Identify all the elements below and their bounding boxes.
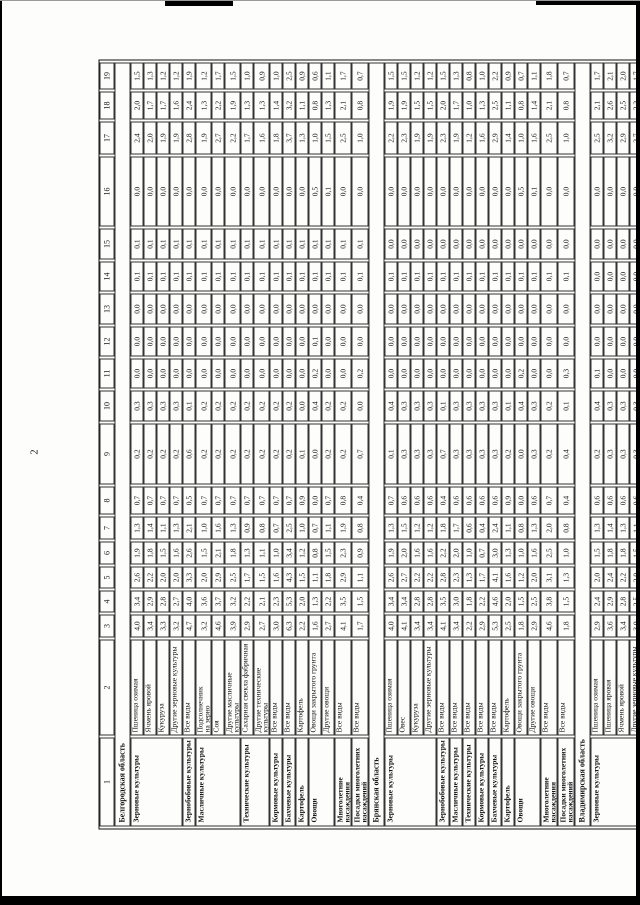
value-cell: 0,0 — [463, 294, 476, 325]
value-cell: 1,7 — [241, 567, 254, 589]
value-cell: 0,6 — [604, 487, 617, 515]
value-cell: 0,0 — [437, 359, 450, 389]
value-cell: 1,2 — [296, 542, 309, 565]
value-cell: 2,5 — [489, 92, 502, 120]
value-cell: 0,3 — [476, 424, 489, 485]
value-cell: 0,2 — [352, 359, 369, 389]
value-cell: 0,0 — [476, 327, 489, 357]
value-cell: 1,9 — [335, 517, 352, 540]
value-cell: 0,3 — [424, 391, 437, 422]
value-cell: 0,1 — [541, 262, 558, 292]
row-label: Все виды — [283, 640, 296, 736]
value-cell: 0,1 — [335, 229, 352, 260]
value-cell: 0,0 — [270, 294, 283, 325]
value-cell: 2,8 — [157, 591, 170, 613]
table-row: Зернобобовые культурыВсе виды4,74,03,32,… — [183, 63, 196, 827]
value-cell: 0,0 — [322, 327, 335, 357]
value-cell: 1,3 — [241, 92, 254, 120]
value-cell: 0,0 — [144, 157, 157, 227]
value-cell: 1,0 — [270, 542, 283, 565]
value-cell: 0,9 — [502, 63, 515, 90]
value-cell: 0,0 — [541, 229, 558, 260]
region-header: Брянская область — [369, 63, 385, 827]
value-cell: 0,6 — [463, 517, 476, 540]
value-cell: 0,1 — [476, 262, 489, 292]
value-cell: 0,3 — [411, 391, 424, 422]
value-cell: 1,8 — [515, 615, 528, 638]
value-cell: 0,0 — [515, 229, 528, 260]
value-cell: 2,7 — [254, 615, 270, 638]
value-cell: 3,9 — [225, 615, 241, 638]
value-cell: 0,0 — [502, 294, 515, 325]
value-cell: 0,0 — [450, 157, 463, 227]
value-cell: 0,0 — [296, 157, 309, 227]
value-cell: 0,0 — [515, 294, 528, 325]
value-cell: 1,0 — [241, 63, 254, 90]
value-cell: 0,0 — [283, 359, 296, 389]
value-cell: 1,0 — [558, 122, 575, 155]
value-cell: 0,1 — [196, 229, 212, 260]
value-cell: 2,0 — [170, 567, 183, 589]
value-cell: 0,0 — [385, 157, 398, 227]
value-cell: 0,1 — [502, 262, 515, 292]
table-row: Ячмень яровой3,42,82,21,81,30,60,30,30,0… — [617, 63, 630, 827]
value-cell: 0,0 — [528, 294, 541, 325]
value-cell: 0,0 — [463, 229, 476, 260]
value-cell: 2,0 — [450, 542, 463, 565]
value-cell: 0,3 — [489, 424, 502, 485]
value-cell: 0,2 — [515, 359, 528, 389]
value-cell: 1,9 — [225, 92, 241, 120]
value-cell: 0,7 — [385, 487, 398, 515]
value-cell: 1,2 — [463, 122, 476, 155]
value-cell: 0,0 — [424, 327, 437, 357]
table-row: Соя4,63,72,92,11,60,70,20,20,00,00,00,10… — [212, 63, 225, 827]
value-cell: 1,3 — [463, 567, 476, 589]
group-label: Технические культуры — [241, 738, 270, 827]
value-cell: 0,0 — [617, 229, 630, 260]
group-label: Картофель — [296, 738, 309, 827]
table-row: Технические культурыСахарная свекла фабр… — [241, 63, 254, 827]
value-cell: 2,2 — [385, 122, 398, 155]
value-cell: 0,1 — [296, 262, 309, 292]
group-label: Зернобобовые культуры — [437, 738, 450, 827]
table-row: Многолетние насажденияВсе виды4,13,52,92… — [335, 63, 352, 827]
table-row: Другие зерновые культуры3,22,72,01,61,30… — [170, 63, 183, 827]
value-cell: 1,1 — [296, 92, 309, 120]
value-cell: 0,0 — [463, 157, 476, 227]
group-label: Бахчевые культуры — [283, 738, 296, 827]
row-label: Ячмень яровой — [144, 640, 157, 736]
value-cell: 0,2 — [502, 424, 515, 485]
value-cell: 0,2 — [322, 424, 335, 485]
landscape-sheet: 2 12345678910111213141516171819Белгородс… — [4, 3, 638, 902]
table-row: Бахчевые культурыВсе виды5,34,64,13,02,4… — [489, 63, 502, 827]
crop-statistics-table: 12345678910111213141516171819Белгородска… — [99, 60, 640, 830]
value-cell: 0,3 — [398, 424, 411, 485]
value-cell: 5,3 — [489, 615, 502, 638]
value-cell: 0,1 — [296, 424, 309, 485]
value-cell: 3,4 — [144, 615, 157, 638]
value-cell: 0,0 — [450, 294, 463, 325]
value-cell: 0,0 — [502, 359, 515, 389]
value-cell: 0,0 — [296, 327, 309, 357]
table-row: Другие зерновые культуры3,42,82,21,61,20… — [424, 63, 437, 827]
value-cell: 0,2 — [270, 424, 283, 485]
value-cell: 2,5 — [591, 122, 604, 155]
value-cell: 2,4 — [591, 591, 604, 613]
row-label: Все виды — [270, 640, 283, 736]
value-cell: 0,0 — [322, 294, 335, 325]
value-cell: 2,9 — [144, 591, 157, 613]
value-cell: 0,1 — [170, 262, 183, 292]
table-row: Технические культурыВсе виды2,21,81,31,0… — [463, 63, 476, 827]
value-cell: 1,2 — [170, 63, 183, 90]
value-cell: 3,7 — [212, 591, 225, 613]
value-cell: 2,3 — [450, 567, 463, 589]
value-cell: 0,2 — [196, 391, 212, 422]
row-label: Все виды — [541, 640, 558, 736]
value-cell: 0,4 — [515, 391, 528, 422]
value-cell: 1,5 — [254, 567, 270, 589]
value-cell: 2,5 — [541, 122, 558, 155]
value-cell: 3,0 — [489, 542, 502, 565]
value-cell: 1,6 — [424, 542, 437, 565]
value-cell: 1,6 — [502, 567, 515, 589]
value-cell: 0,6 — [450, 487, 463, 515]
value-cell: 0,0 — [196, 294, 212, 325]
value-cell: 0,8 — [309, 542, 322, 565]
value-cell: 0,0 — [335, 294, 352, 325]
row-label: Все виды — [183, 640, 196, 736]
value-cell: 0,0 — [270, 157, 283, 227]
value-cell: 1,2 — [157, 63, 170, 90]
value-cell: 0,0 — [296, 359, 309, 389]
value-cell: 0,0 — [225, 327, 241, 357]
column-header: 4 — [100, 591, 115, 613]
value-cell: 2,4 — [131, 122, 144, 155]
value-cell: 0,0 — [309, 487, 322, 515]
value-cell: 0,1 — [296, 229, 309, 260]
value-cell: 0,0 — [309, 294, 322, 325]
value-cell: 1,1 — [157, 517, 170, 540]
value-cell: 0,1 — [196, 262, 212, 292]
value-cell: 0,1 — [463, 262, 476, 292]
value-cell: 0,0 — [398, 157, 411, 227]
value-cell: 0,6 — [528, 487, 541, 515]
value-cell: 1,0 — [270, 63, 283, 90]
value-cell: 0,9 — [254, 63, 270, 90]
group-label: Технические культуры — [463, 738, 476, 827]
scan-border-left — [0, 0, 2, 905]
value-cell: 2,3 — [398, 122, 411, 155]
value-cell: 0,3 — [157, 391, 170, 422]
value-cell: 2,9 — [489, 122, 502, 155]
value-cell: 0,6 — [398, 487, 411, 515]
value-cell: 0,0 — [604, 327, 617, 357]
value-cell: 0,0 — [183, 157, 196, 227]
value-cell: 0,3 — [450, 424, 463, 485]
value-cell: 1,6 — [476, 122, 489, 155]
table-wrapper: 12345678910111213141516171819Белгородска… — [99, 60, 640, 830]
value-cell: 0,0 — [591, 262, 604, 292]
value-cell: 1,5 — [515, 591, 528, 613]
value-cell: 0,0 — [411, 359, 424, 389]
value-cell: 0,6 — [411, 487, 424, 515]
value-cell: 0,0 — [528, 229, 541, 260]
value-cell: 0,7 — [352, 424, 369, 485]
value-cell: 2,7 — [212, 122, 225, 155]
value-cell: 0,1 — [309, 229, 322, 260]
value-cell: 1,3 — [502, 542, 515, 565]
value-cell: 0,6 — [463, 487, 476, 515]
table-row: Другие масличные культуры3,93,22,51,81,3… — [225, 63, 241, 827]
value-cell: 0,5 — [183, 487, 196, 515]
column-header: 2 — [100, 640, 115, 736]
value-cell: 0,0 — [296, 391, 309, 422]
value-cell: 0,1 — [352, 262, 369, 292]
value-cell: 1,6 — [254, 122, 270, 155]
value-cell: 0,2 — [541, 391, 558, 422]
value-cell: 1,7 — [144, 92, 157, 120]
value-cell: 0,0 — [489, 294, 502, 325]
value-cell: 0,7 — [270, 487, 283, 515]
value-cell: 2,0 — [437, 92, 450, 120]
value-cell: 0,0 — [617, 294, 630, 325]
value-cell: 1,3 — [385, 517, 398, 540]
value-cell: 1,7 — [157, 92, 170, 120]
value-cell: 1,8 — [225, 542, 241, 565]
table-row: КартофельКартофель2,52,01,61,31,10,90,20… — [502, 63, 515, 827]
value-cell: 0,0 — [212, 157, 225, 227]
value-cell: 0,2 — [225, 424, 241, 485]
value-cell: 3,7 — [283, 122, 296, 155]
row-label: Все виды — [450, 640, 463, 736]
value-cell: 0,0 — [144, 294, 157, 325]
value-cell: 0,5 — [515, 157, 528, 227]
value-cell: 2,5 — [502, 615, 515, 638]
row-label: Подсолнечник на зерно — [196, 640, 212, 736]
value-cell: 0,1 — [322, 157, 335, 227]
value-cell: 1,8 — [617, 542, 630, 565]
value-cell: 1,4 — [528, 92, 541, 120]
value-cell: 0,7 — [541, 487, 558, 515]
value-cell: 0,1 — [183, 262, 196, 292]
value-cell: 1,3 — [617, 517, 630, 540]
value-cell: 3,4 — [411, 615, 424, 638]
value-cell: 0,2 — [270, 391, 283, 422]
group-label: Зерновые культуры — [385, 738, 437, 827]
value-cell: 3,4 — [283, 542, 296, 565]
value-cell: 1,1 — [322, 63, 335, 90]
value-cell: 0,1 — [385, 262, 398, 292]
value-cell: 0,0 — [131, 294, 144, 325]
value-cell: 1,6 — [528, 542, 541, 565]
value-cell: 2,6 — [131, 567, 144, 589]
value-cell: 0,1 — [144, 262, 157, 292]
value-cell: 0,0 — [489, 229, 502, 260]
table-row: Бахчевые культурыВсе виды6,35,34,33,42,5… — [283, 63, 296, 827]
value-cell: 0,0 — [437, 294, 450, 325]
value-cell: 0,4 — [385, 391, 398, 422]
value-cell: 0,0 — [489, 359, 502, 389]
value-cell: 0,1 — [283, 229, 296, 260]
value-cell: 0,1 — [283, 262, 296, 292]
value-cell: 4,1 — [489, 567, 502, 589]
value-cell: 0,3 — [617, 391, 630, 422]
value-cell: 0,1 — [131, 262, 144, 292]
row-label: Овощи закрытого грунта — [309, 640, 322, 736]
value-cell: 0,8 — [558, 92, 575, 120]
value-cell: 0,0 — [604, 157, 617, 227]
column-header: 19 — [100, 63, 115, 90]
column-header: 12 — [100, 327, 115, 357]
value-cell: 0,1 — [558, 262, 575, 292]
value-cell: 2,1 — [335, 92, 352, 120]
value-cell: 0,2 — [212, 424, 225, 485]
row-label: Картофель — [502, 640, 515, 736]
value-cell: 0,0 — [604, 262, 617, 292]
table-row: Зернобобовые культурыВсе виды4,13,52,82,… — [437, 63, 450, 827]
value-cell: 0,0 — [558, 327, 575, 357]
value-cell: 0,0 — [212, 359, 225, 389]
value-cell: 0,1 — [411, 262, 424, 292]
value-cell: 2,0 — [196, 567, 212, 589]
row-label: Овес — [398, 640, 411, 736]
value-cell: 1,0 — [309, 122, 322, 155]
value-cell: 0,0 — [424, 294, 437, 325]
value-cell: 0,2 — [254, 424, 270, 485]
value-cell: 0,0 — [411, 157, 424, 227]
value-cell: 0,9 — [296, 487, 309, 515]
value-cell: 0,0 — [296, 294, 309, 325]
value-cell: 0,0 — [528, 327, 541, 357]
value-cell: 1,0 — [463, 542, 476, 565]
value-cell: 0,0 — [541, 294, 558, 325]
value-cell: 1,0 — [352, 122, 369, 155]
value-cell: 1,7 — [591, 63, 604, 90]
table-row: Масличные культурыПодсолнечник на зерно3… — [196, 63, 212, 827]
value-cell: 2,1 — [254, 591, 270, 613]
value-cell: 0,0 — [591, 294, 604, 325]
value-cell: 1,9 — [398, 92, 411, 120]
value-cell: 0,0 — [241, 294, 254, 325]
value-cell: 0,2 — [157, 424, 170, 485]
table-row: Ячмень яровой3,42,92,21,81,40,70,20,30,0… — [144, 63, 157, 827]
value-cell: 1,3 — [241, 542, 254, 565]
value-cell: 2,4 — [489, 517, 502, 540]
value-cell: 0,1 — [385, 424, 398, 485]
column-header: 3 — [100, 615, 115, 638]
value-cell: 2,6 — [604, 92, 617, 120]
value-cell: 2,6 — [385, 567, 398, 589]
value-cell: 0,0 — [254, 294, 270, 325]
value-cell: 2,2 — [489, 63, 502, 90]
value-cell: 0,0 — [476, 294, 489, 325]
scan-border-right — [636, 0, 640, 905]
value-cell: 0,8 — [335, 487, 352, 515]
value-cell: 1,5 — [196, 542, 212, 565]
value-cell: 2,2 — [463, 615, 476, 638]
value-cell: 1,3 — [450, 63, 463, 90]
value-cell: 2,8 — [411, 591, 424, 613]
value-cell: 0,0 — [463, 359, 476, 389]
value-cell: 2,8 — [424, 591, 437, 613]
table-row: Другие технические культуры2,72,11,51,10… — [254, 63, 270, 827]
value-cell: 1,3 — [144, 63, 157, 90]
table-row: Масличные культурыВсе виды3,43,02,32,01,… — [450, 63, 463, 827]
value-cell: 2,2 — [437, 542, 450, 565]
value-cell: 0,0 — [283, 157, 296, 227]
column-header: 8 — [100, 487, 115, 515]
value-cell: 0,1 — [241, 262, 254, 292]
value-cell: 0,0 — [183, 327, 196, 357]
value-cell: 0,3 — [411, 424, 424, 485]
value-cell: 1,9 — [450, 122, 463, 155]
value-cell: 2,7 — [398, 567, 411, 589]
value-cell: 0,1 — [270, 229, 283, 260]
value-cell: 0,0 — [270, 327, 283, 357]
value-cell: 1,9 — [385, 542, 398, 565]
value-cell: 0,3 — [398, 391, 411, 422]
region-row: Брянская область — [369, 63, 385, 827]
row-label: Пшеница яровая — [604, 640, 617, 736]
table-row: Пшеница яровая3,62,92,41,81,40,60,30,30,… — [604, 63, 617, 827]
value-cell: 1,9 — [183, 63, 196, 90]
row-label: Все виды — [489, 640, 502, 736]
value-cell: 0,7 — [437, 424, 450, 485]
value-cell: 0,0 — [463, 327, 476, 357]
value-cell: 2,0 — [157, 567, 170, 589]
value-cell: 0,0 — [437, 229, 450, 260]
value-cell: 2,8 — [183, 122, 196, 155]
value-cell: 0,7 — [170, 487, 183, 515]
value-cell: 0,1 — [437, 391, 450, 422]
value-cell: 1,3 — [131, 517, 144, 540]
value-cell: 1,5 — [385, 63, 398, 90]
value-cell: 0,0 — [489, 327, 502, 357]
value-cell: 0,0 — [617, 157, 630, 227]
page-number: 2 — [30, 450, 41, 455]
value-cell: 0,1 — [183, 229, 196, 260]
value-cell: 0,0 — [502, 157, 515, 227]
value-cell: 1,5 — [296, 567, 309, 589]
table-row: Кукуруза3,42,82,21,61,20,60,30,30,00,00,… — [411, 63, 424, 827]
value-cell: 4,6 — [212, 615, 225, 638]
value-cell: 2,9 — [528, 615, 541, 638]
value-cell: 1,3 — [476, 92, 489, 120]
group-label: Масличные культуры — [196, 738, 241, 827]
value-cell: 3,2 — [604, 122, 617, 155]
row-label: Пшеница озимая — [591, 640, 604, 736]
column-header: 9 — [100, 424, 115, 485]
value-cell: 0,1 — [515, 262, 528, 292]
column-header: 7 — [100, 517, 115, 540]
value-cell: 0,1 — [270, 262, 283, 292]
value-cell: 2,2 — [241, 591, 254, 613]
value-cell: 1,0 — [196, 517, 212, 540]
value-cell: 1,5 — [225, 63, 241, 90]
value-cell: 1,0 — [296, 517, 309, 540]
value-cell: 2,3 — [270, 591, 283, 613]
value-cell: 0,6 — [309, 63, 322, 90]
value-cell: 1,6 — [170, 542, 183, 565]
value-cell: 1,8 — [144, 542, 157, 565]
value-cell: 2,9 — [241, 615, 254, 638]
value-cell: 3,4 — [131, 591, 144, 613]
row-label: Овощи закрытого грунта — [515, 640, 528, 736]
column-header: 10 — [100, 391, 115, 422]
